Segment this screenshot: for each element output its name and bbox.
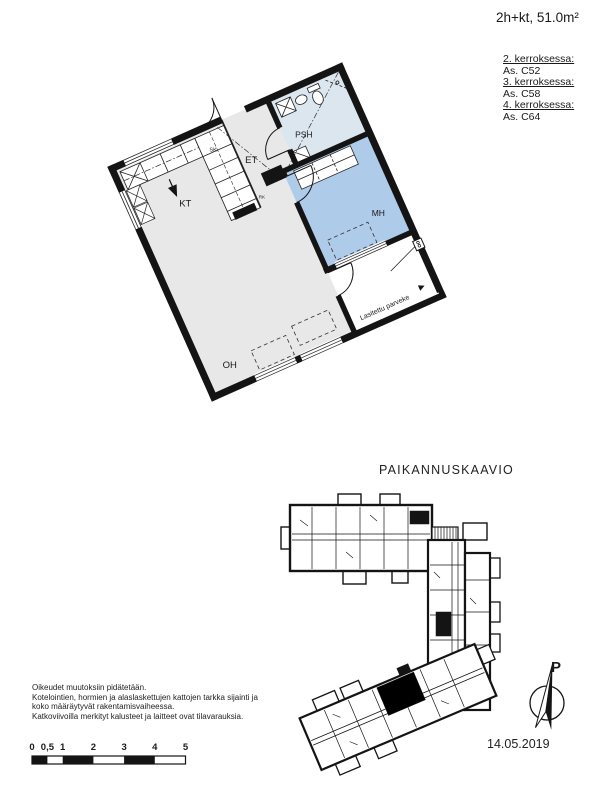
- location-top-wing: [281, 494, 432, 584]
- note-line: koko määräytyvät rakentamisvaiheessa.: [32, 702, 258, 712]
- floor-3-label: 3. kerroksessa:: [503, 77, 574, 89]
- scale-tick-3: 3: [121, 742, 126, 753]
- scale-tick-1: 1: [60, 742, 66, 753]
- location-diagram: [281, 494, 513, 781]
- room-label-oh: OH: [223, 360, 237, 371]
- room-label-et: ET: [245, 155, 257, 166]
- floor-unit-list: 2. kerroksessa: As. C52 3. kerroksessa: …: [503, 54, 574, 123]
- disclaimer-notes: Oikeudet muutoksiin pidätetään. Koteloin…: [32, 683, 258, 721]
- compass-north-label: P: [551, 659, 561, 676]
- compass: P: [530, 659, 564, 730]
- room-label-sk: SK: [209, 148, 217, 154]
- scale-tick-5: 5: [183, 742, 189, 753]
- floor-2-label: 2. kerroksessa:: [503, 54, 574, 66]
- room-label-rk: RK: [259, 195, 265, 200]
- floorplan-sheet: KT SK ET PSH MH OH RK Lasitettu parveke: [0, 0, 603, 787]
- apartment-plan: KT SK ET PSH MH OH RK Lasitettu parveke: [98, 43, 447, 403]
- scale-tick-0: 0: [29, 742, 34, 753]
- room-label-mh: MH: [372, 208, 385, 218]
- scale-tick-4: 4: [152, 742, 158, 753]
- scale-tick-05: 0,5: [41, 742, 55, 753]
- room-label-kt: KT: [179, 199, 191, 210]
- note-line: Oikeudet muutoksiin pidätetään.: [32, 683, 258, 693]
- location-diagram-title: PAIKANNUSKAAVIO: [379, 463, 514, 477]
- room-label-psh: PSH: [295, 129, 312, 139]
- apartment-type-label: 2h+kt, 51.0m²: [496, 10, 579, 25]
- floor-4-label: 4. kerroksessa:: [503, 100, 574, 112]
- floor-4-unit: As. C64: [503, 112, 574, 124]
- scale-tick-2: 2: [91, 742, 96, 753]
- note-line: Katkoviivoilla merkityt kalusteet ja lai…: [32, 712, 258, 722]
- scale-bar: 0 0,5 1 2 3 4 5: [29, 742, 189, 764]
- location-stairs: [432, 523, 487, 540]
- drawing-date: 14.05.2019: [487, 737, 550, 751]
- note-line: Kotelointien, hormien ja alaslaskettujen…: [32, 693, 258, 703]
